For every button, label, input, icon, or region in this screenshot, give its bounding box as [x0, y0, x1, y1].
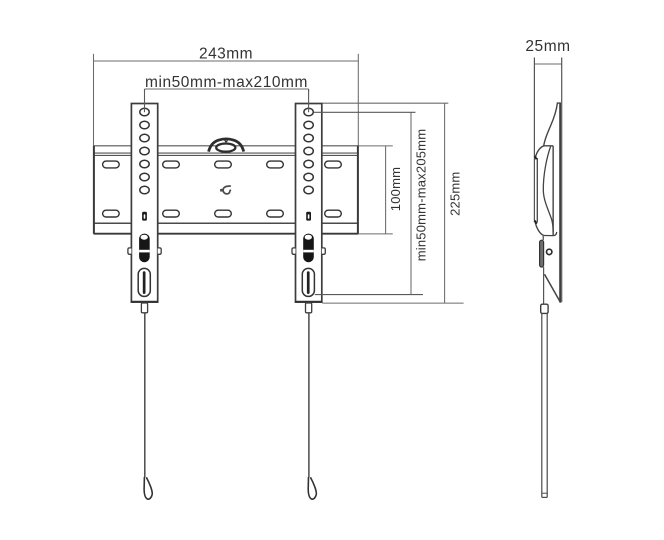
svg-text:min50mm-max210mm: min50mm-max210mm: [145, 74, 308, 91]
svg-text:min50mm-max205mm: min50mm-max205mm: [413, 129, 428, 262]
svg-text:25mm: 25mm: [525, 38, 570, 55]
svg-text:225mm: 225mm: [447, 172, 462, 216]
svg-text:243mm: 243mm: [199, 46, 253, 63]
svg-text:100mm: 100mm: [388, 167, 403, 211]
